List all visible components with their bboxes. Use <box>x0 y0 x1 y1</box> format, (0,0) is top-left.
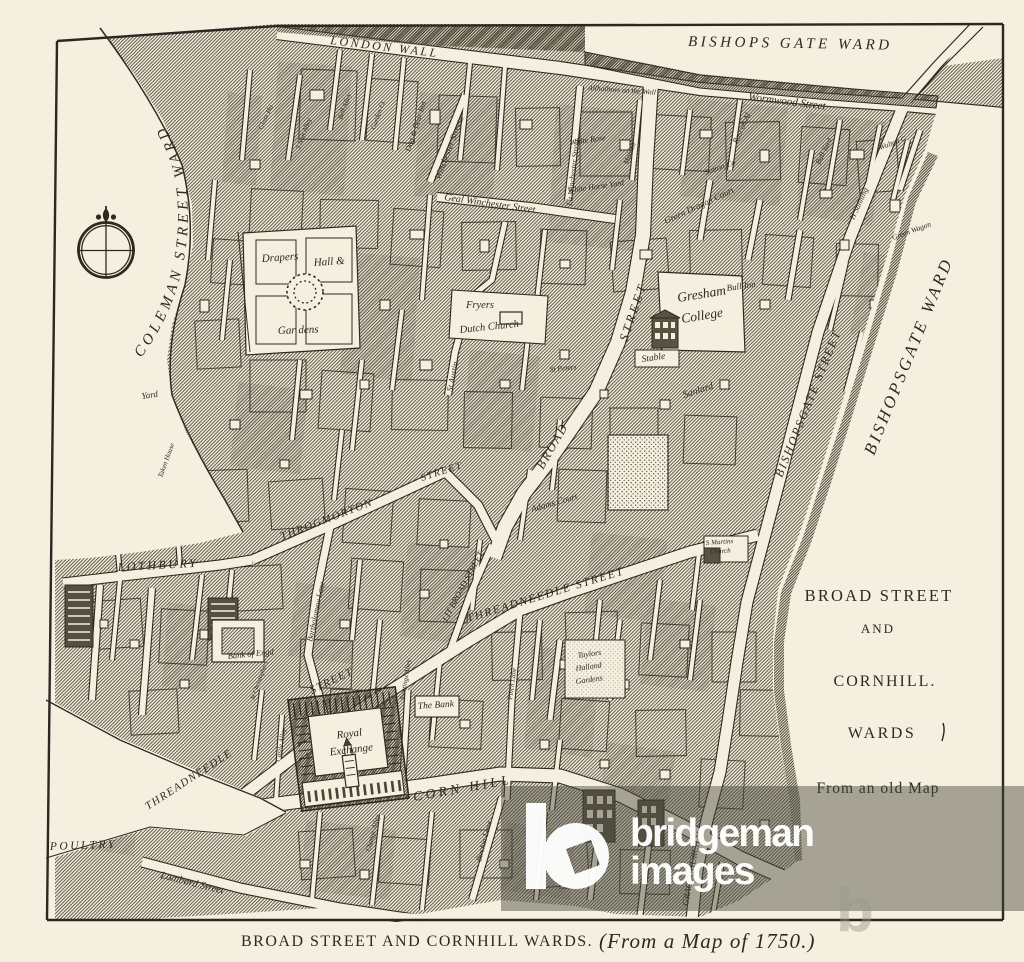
svg-text:b: b <box>836 876 874 945</box>
svg-text:Hall &: Hall & <box>312 255 345 269</box>
svg-text:POULTRY: POULTRY <box>49 839 117 853</box>
svg-text:Fryers: Fryers <box>465 300 494 311</box>
svg-text:AND: AND <box>861 621 895 636</box>
svg-text:Church: Church <box>710 547 732 556</box>
svg-text:Gar dens: Gar dens <box>278 324 319 337</box>
svg-text:BROAD STREET: BROAD STREET <box>805 586 954 605</box>
svg-text:(From a Map of 1750.): (From a Map of 1750.) <box>599 929 816 953</box>
svg-text:images: images <box>630 850 755 893</box>
svg-text:BROAD STREET AND CORNHILL WARD: BROAD STREET AND CORNHILL WARDS. <box>241 933 593 950</box>
svg-text:WARDS: WARDS <box>848 725 917 742</box>
svg-text:CORNHILL.: CORNHILL. <box>834 673 937 690</box>
svg-text:bridgeman: bridgeman <box>630 812 813 855</box>
